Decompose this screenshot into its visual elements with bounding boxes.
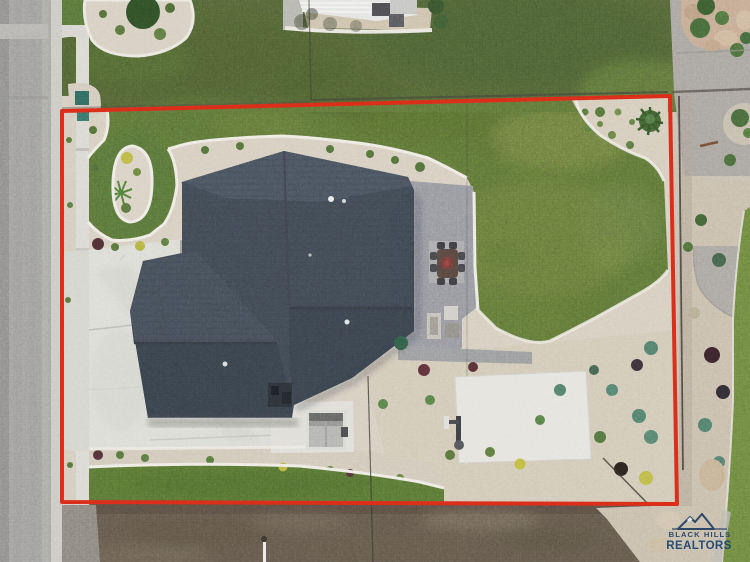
svg-text:BLACK HILLS: BLACK HILLS xyxy=(669,530,732,539)
svg-text:REALTORS: REALTORS xyxy=(666,540,731,552)
